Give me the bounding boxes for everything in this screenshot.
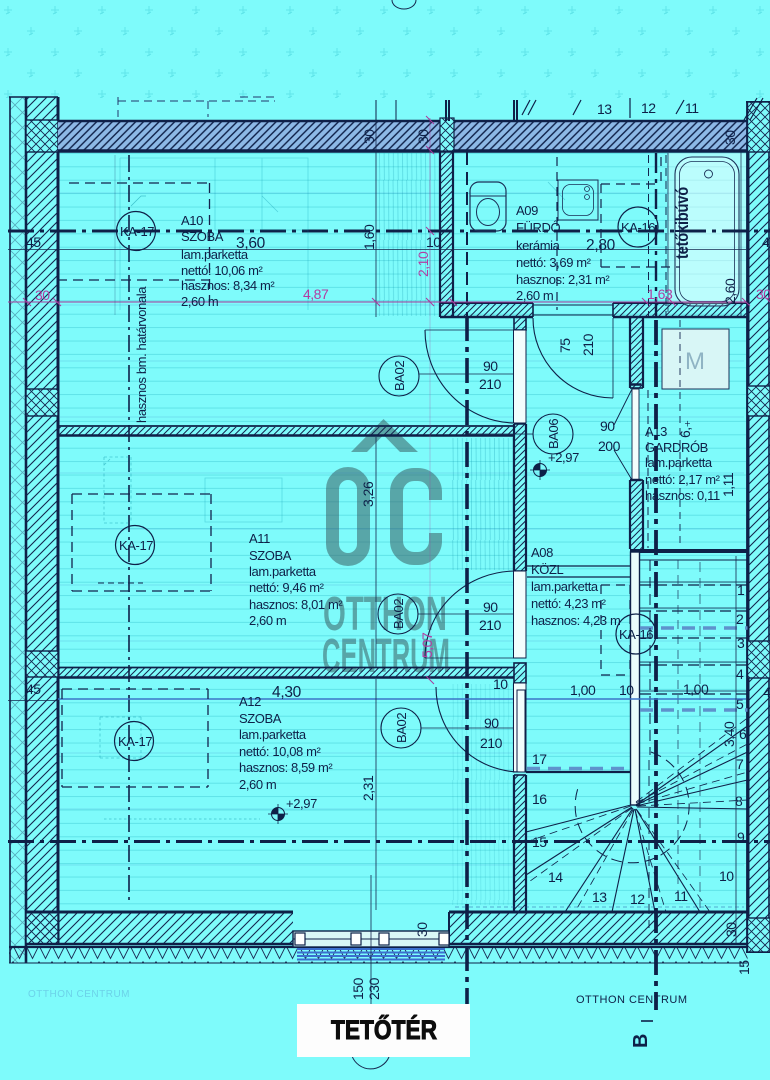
svg-text:75: 75 (557, 338, 573, 353)
svg-text:6: 6 (739, 726, 747, 742)
svg-text:hasznos: 8,34 m²: hasznos: 8,34 m² (181, 278, 275, 293)
svg-text:FÜRDŐ: FÜRDŐ (516, 220, 561, 235)
svg-text:12: 12 (641, 100, 656, 116)
svg-text:30: 30 (415, 129, 431, 144)
svg-text:GARDRÓB: GARDRÓB (645, 440, 708, 455)
svg-text:13: 13 (597, 101, 612, 117)
svg-text:10: 10 (493, 676, 508, 692)
svg-text:hasznos: 8,01 m²: hasznos: 8,01 m² (249, 597, 343, 612)
svg-text:200: 200 (598, 438, 621, 454)
svg-text:lam.parketta: lam.parketta (645, 455, 713, 470)
svg-text:1,00: 1,00 (570, 682, 596, 698)
svg-text:90: 90 (483, 599, 498, 615)
svg-text:4: 4 (763, 684, 770, 700)
svg-text:nettó: 2,17 m²: nettó: 2,17 m² (645, 472, 721, 487)
svg-text:A08: A08 (531, 545, 553, 560)
svg-text:M: M (685, 348, 705, 375)
svg-text:4,30: 4,30 (272, 684, 302, 701)
svg-text:210: 210 (479, 617, 502, 633)
svg-text:30: 30 (722, 130, 738, 145)
svg-text:210: 210 (580, 333, 596, 356)
svg-text:2,80: 2,80 (586, 237, 616, 254)
svg-text:3,60: 3,60 (236, 235, 266, 252)
svg-text:11: 11 (674, 888, 688, 904)
svg-text:3,40: 3,40 (721, 721, 737, 747)
svg-text:tetőkibúvó: tetőkibúvó (672, 187, 692, 259)
svg-text:2,31: 2,31 (360, 775, 376, 801)
svg-text:A13: A13 (645, 424, 667, 439)
svg-text:3: 3 (737, 635, 745, 651)
svg-text:2,10: 2,10 (415, 251, 431, 277)
svg-text:BA02: BA02 (392, 361, 407, 391)
svg-text:3,26: 3,26 (360, 481, 376, 507)
svg-text:90: 90 (600, 418, 615, 434)
svg-text:14: 14 (548, 869, 563, 885)
svg-text:KA-17: KA-17 (119, 538, 153, 553)
svg-text:2,60 m: 2,60 m (249, 613, 286, 628)
svg-text:7: 7 (736, 756, 744, 772)
svg-text:nettó: 10,08 m²: nettó: 10,08 m² (239, 744, 322, 759)
svg-text:210: 210 (480, 735, 503, 751)
svg-text:17: 17 (532, 751, 547, 767)
svg-text:4: 4 (762, 234, 770, 250)
svg-text:2,60 m: 2,60 m (181, 294, 218, 309)
svg-text:210: 210 (479, 376, 502, 392)
svg-text:BA06: BA06 (546, 419, 561, 449)
svg-text:nettó: 3,69 m²: nettó: 3,69 m² (516, 255, 592, 270)
svg-text:30: 30 (414, 922, 430, 937)
svg-text:A10: A10 (181, 213, 203, 228)
svg-text:A11: A11 (249, 531, 270, 546)
svg-text:KÖZL: KÖZL (531, 562, 564, 577)
svg-text:hasznos: 8,59 m²: hasznos: 8,59 m² (239, 760, 333, 775)
svg-text:1,63: 1,63 (647, 286, 673, 302)
svg-text:6,₊: 6,₊ (677, 420, 693, 438)
svg-text:5,07: 5,07 (419, 632, 435, 658)
svg-text:1,00: 1,00 (683, 681, 709, 697)
svg-text:nettó: 4,23 m²: nettó: 4,23 m² (531, 596, 607, 611)
svg-text:SZOBA: SZOBA (181, 229, 224, 244)
svg-text:kerámia: kerámia (516, 238, 561, 253)
svg-text:150: 150 (350, 977, 366, 1000)
svg-text:45: 45 (26, 681, 41, 697)
svg-text:10: 10 (426, 234, 441, 250)
svg-text:30: 30 (361, 129, 377, 144)
svg-text:OTTHON CENTRUM: OTTHON CENTRUM (28, 989, 130, 1000)
svg-text:1,11: 1,11 (720, 472, 736, 497)
svg-text:2,60 m: 2,60 m (516, 288, 553, 303)
svg-text:1,60: 1,60 (361, 224, 377, 250)
svg-text:nettó: 9,46 m²: nettó: 9,46 m² (249, 580, 325, 595)
svg-text:12: 12 (630, 891, 645, 907)
svg-text:A09: A09 (516, 203, 538, 218)
svg-text:+2,97: +2,97 (548, 450, 579, 465)
svg-text:TETŐTÉR: TETŐTÉR (331, 1014, 437, 1045)
svg-text:30: 30 (723, 922, 739, 937)
svg-text:hasznos: 2,31 m²: hasznos: 2,31 m² (516, 272, 610, 287)
svg-text:4,87: 4,87 (303, 286, 329, 302)
svg-text:90: 90 (484, 715, 499, 731)
svg-text:KA-16: KA-16 (619, 627, 653, 642)
svg-text:B: B (630, 1034, 652, 1048)
svg-text:1: 1 (737, 582, 745, 598)
svg-text:2,60: 2,60 (722, 278, 738, 304)
svg-text:10: 10 (619, 682, 634, 698)
svg-text:BA02: BA02 (391, 599, 406, 629)
svg-text:10: 10 (719, 868, 734, 884)
svg-text:SZOBA: SZOBA (239, 711, 282, 726)
svg-text:4: 4 (736, 666, 744, 682)
svg-text:BA02: BA02 (394, 713, 409, 743)
svg-text:lam.parketta: lam.parketta (239, 727, 307, 742)
svg-text:2: 2 (736, 611, 744, 627)
svg-text:230: 230 (366, 977, 382, 1000)
svg-text:30: 30 (756, 286, 770, 302)
svg-text:hasznos bm. határvonala: hasznos bm. határvonala (134, 286, 149, 423)
svg-text:45: 45 (26, 234, 41, 250)
svg-text:30: 30 (35, 287, 50, 303)
svg-text:A12: A12 (239, 694, 261, 709)
svg-text:16: 16 (532, 791, 547, 807)
svg-text:11: 11 (685, 100, 699, 116)
svg-text:+2,97: +2,97 (286, 796, 317, 811)
svg-text:90: 90 (483, 358, 498, 374)
svg-text:15: 15 (736, 960, 752, 975)
svg-text:SZOBA: SZOBA (249, 548, 292, 563)
svg-text:OTTHON CENTRUM: OTTHON CENTRUM (576, 994, 688, 1006)
svg-text:KA-17: KA-17 (118, 734, 152, 749)
svg-text:KA-16: KA-16 (621, 220, 655, 235)
svg-text:lam.parketta: lam.parketta (531, 579, 599, 594)
svg-text:hasznos: 0,11: hasznos: 0,11 (645, 488, 720, 503)
svg-text:13: 13 (592, 889, 607, 905)
svg-text:2,60 m: 2,60 m (239, 777, 276, 792)
svg-text:nettó: 10,06 m²: nettó: 10,06 m² (181, 263, 264, 278)
svg-text:hasznos: 4,23 m: hasznos: 4,23 m (531, 613, 620, 628)
svg-text:lam.parketta: lam.parketta (249, 564, 317, 579)
svg-text:KA-17: KA-17 (120, 224, 154, 239)
